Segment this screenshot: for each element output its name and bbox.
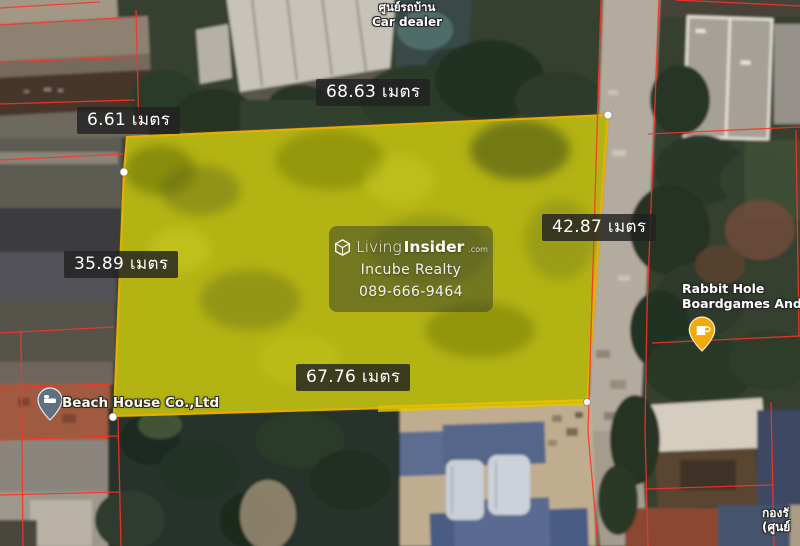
beach-house-map-pin-icon <box>37 387 63 421</box>
poi-car-dealer-english: Car dealer <box>348 15 466 29</box>
poi-label-rabbit-hole: Rabbit Hole Boardgames And C <box>682 282 800 312</box>
poi-rabbit-hole-line1: Rabbit Hole <box>682 282 800 297</box>
agency-name: Incube Realty <box>361 262 462 278</box>
brand-tld: .com <box>468 245 488 254</box>
land-plot-satellite-map: 68.63 เมตร 6.61 เมตร 35.89 เมตร 42.87 เม… <box>0 0 800 546</box>
watermark-brand-row: Living Insider .com <box>334 238 488 256</box>
poi-bottom-right-thai-line1: กองรั <box>762 506 790 520</box>
watermark-card: Living Insider .com Incube Realty 089-66… <box>329 226 493 312</box>
rabbit-hole-cafe-pin-icon <box>688 316 716 352</box>
poi-label-car-dealer: ศูนย์รถบ้าน Car dealer <box>348 1 466 29</box>
poi-car-dealer-thai: ศูนย์รถบ้าน <box>348 1 466 15</box>
dimension-label-top-left: 6.61 เมตร <box>77 107 180 134</box>
brand-insider: Insider <box>404 238 465 256</box>
dimension-label-bottom: 67.76 เมตร <box>296 364 410 391</box>
brand-living: Living <box>356 238 402 256</box>
livinginsider-logo-icon <box>334 239 351 256</box>
dimension-label-top: 68.63 เมตร <box>316 79 430 106</box>
dimension-label-right: 42.87 เมตร <box>542 214 656 241</box>
dimension-label-left: 35.89 เมตร <box>64 251 178 278</box>
poi-label-beach-house: Beach House Co.,Ltd <box>62 396 219 412</box>
poi-label-bottom-right-thai: กองรั (ศูนย์ <box>762 506 790 534</box>
agency-phone: 089-666-9464 <box>359 284 463 300</box>
poi-bottom-right-thai-line2: (ศูนย์ <box>762 520 790 534</box>
poi-rabbit-hole-line2: Boardgames And C <box>682 297 800 312</box>
